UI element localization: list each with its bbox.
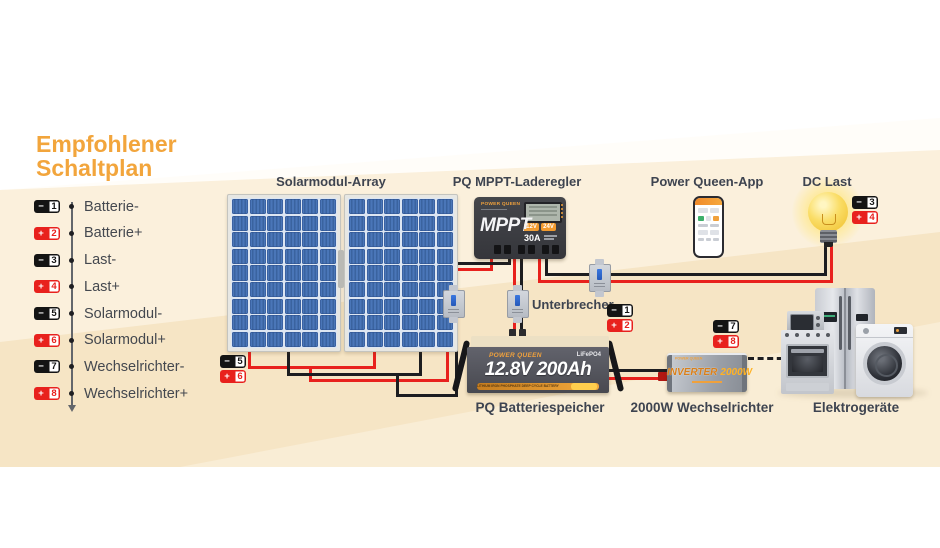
legend-label: Solarmodul- — [84, 306, 162, 322]
tag-inverter-negative: −7 — [713, 320, 739, 333]
wire-pv-negative — [287, 373, 422, 376]
wire-load-positive — [538, 280, 833, 283]
mppt-charge-controller: POWER QUEEN 12V 24V MPPT 30A — [474, 197, 566, 259]
polarity-badge-3: −3 — [34, 254, 60, 267]
legend: −1 Batterie- +2 Batterie+ −3 Last- +4 La… — [34, 200, 188, 414]
breaker-battery — [507, 290, 529, 318]
wire-pv-negative — [396, 394, 458, 397]
mppt-terminal — [494, 245, 501, 254]
inverter-brand-logo: POWER QUEEN — [675, 357, 702, 361]
solar-panel-left — [227, 194, 341, 352]
legend-label: Batterie+ — [84, 225, 142, 241]
oven-door — [786, 344, 829, 378]
inverter: POWER QUEEN INVERTER2000W — [667, 353, 747, 392]
battery-label: PQ Batteriespeicher — [475, 400, 604, 415]
solar-panel-right — [344, 194, 458, 352]
mppt-label: PQ MPPT-Laderegler — [453, 174, 582, 189]
app-header-bar — [695, 198, 722, 205]
bulb-filament — [822, 214, 836, 225]
legend-dot — [69, 204, 74, 209]
tag-solar-negative: −5 — [220, 355, 246, 368]
tag-battery-negative: −1 — [607, 304, 633, 317]
legend-dot — [69, 258, 74, 263]
solar-array-label: Solarmodul-Array — [276, 174, 386, 189]
tag-inverter-positive: +8 — [713, 335, 739, 348]
inverter-label: 2000W Wechselrichter — [630, 400, 773, 415]
breaker-switch — [515, 295, 520, 306]
fridge-dispenser — [856, 314, 868, 321]
legend-dot — [69, 231, 74, 236]
solar-cell-grid — [348, 198, 454, 348]
wiring-diagram: Empfohlener Schaltplan −1 Batterie- +2 B… — [0, 0, 940, 548]
oven-stove — [781, 330, 834, 394]
breaker-switch — [451, 295, 456, 306]
legend-label: Last+ — [84, 279, 120, 295]
polarity-badge-4: +4 — [34, 280, 60, 293]
legend-item: −3 Last- — [34, 253, 188, 267]
legend-label: Solarmodul+ — [84, 332, 166, 348]
panel-hinge — [338, 250, 344, 288]
mppt-terminal — [528, 245, 535, 254]
battery: POWER QUEEN LiFePO4 12.8V 200Ah LITHIUM … — [467, 347, 609, 393]
wire-pv-positive — [309, 379, 449, 382]
washer-door — [863, 342, 906, 385]
mppt-terminal — [504, 245, 511, 254]
wire-pv-positive — [248, 366, 376, 369]
breaker-pv — [443, 290, 465, 318]
legend-label: Last- — [84, 252, 116, 268]
battery-spec-text: 12.8V 200Ah — [467, 359, 609, 381]
polarity-badge-7: −7 — [34, 360, 60, 373]
appliances-label: Elektrogeräte — [813, 400, 899, 415]
dc-load-label: DC Last — [802, 174, 851, 189]
polarity-badge-5: −5 — [34, 307, 60, 320]
mppt-voltage-badge: 24V — [541, 223, 556, 231]
legend-item: −5 Solarmodul- — [34, 307, 188, 321]
power-queen-app-phone — [693, 196, 724, 258]
tag-load-negative: −3 — [852, 196, 878, 209]
mppt-terminal — [518, 245, 525, 254]
tag-load-positive: +4 — [852, 211, 878, 224]
battery-strip-accent — [571, 383, 597, 390]
inverter-name-text: INVERTER2000W — [667, 367, 747, 378]
legend-dot — [69, 284, 74, 289]
legend-item: +6 Solarmodul+ — [34, 333, 188, 347]
legend-item: +8 Wechselrichter+ — [34, 387, 188, 401]
breaker-switch — [597, 269, 602, 280]
legend-item: −1 Batterie- — [34, 200, 188, 214]
washing-machine — [856, 324, 913, 397]
light-bulb-icon — [808, 192, 848, 232]
legend-dot — [69, 311, 74, 316]
legend-dot — [69, 338, 74, 343]
breaker-label: Unterbrecher — [532, 297, 614, 312]
wire-inverter-positive — [604, 377, 662, 380]
mppt-brand-logo: POWER QUEEN — [481, 202, 520, 207]
polarity-badge-6: +6 — [34, 334, 60, 347]
tag-battery-positive: +2 — [607, 319, 633, 332]
legend-label: Wechselrichter+ — [84, 386, 188, 402]
battery-brand-logo: POWER QUEEN — [489, 352, 542, 359]
legend-item: −7 Wechselrichter- — [34, 360, 188, 374]
legend-label: Wechselrichter- — [84, 359, 184, 375]
tag-solar-positive: +6 — [220, 370, 246, 383]
polarity-badge-2: +2 — [34, 227, 60, 240]
legend-item: +2 Batterie+ — [34, 227, 188, 241]
polarity-badge-1: −1 — [34, 200, 60, 213]
breaker-load — [589, 264, 611, 292]
battery-chemistry-text: LiFePO4 — [577, 352, 601, 358]
legend-dot — [69, 364, 74, 369]
wire-load-negative — [545, 273, 827, 276]
bulb-base-cap — [824, 242, 833, 247]
wire-pv-negative — [455, 262, 511, 265]
mppt-terminal — [552, 245, 559, 254]
legend-label: Batterie- — [84, 199, 139, 215]
app-label: Power Queen-App — [651, 174, 764, 189]
oven-drawer — [786, 383, 829, 391]
wire-load-positive — [538, 255, 541, 283]
mppt-rating-text: 30A — [524, 233, 541, 243]
mppt-terminal — [542, 245, 549, 254]
page-title: Empfohlener Schaltplan — [36, 132, 177, 180]
microwave-window — [790, 314, 814, 331]
legend-dot — [69, 391, 74, 396]
legend-item: +4 Last+ — [34, 280, 188, 294]
solar-cell-grid — [231, 198, 337, 348]
polarity-badge-8: +8 — [34, 387, 60, 400]
washer-control-panel — [856, 324, 913, 338]
